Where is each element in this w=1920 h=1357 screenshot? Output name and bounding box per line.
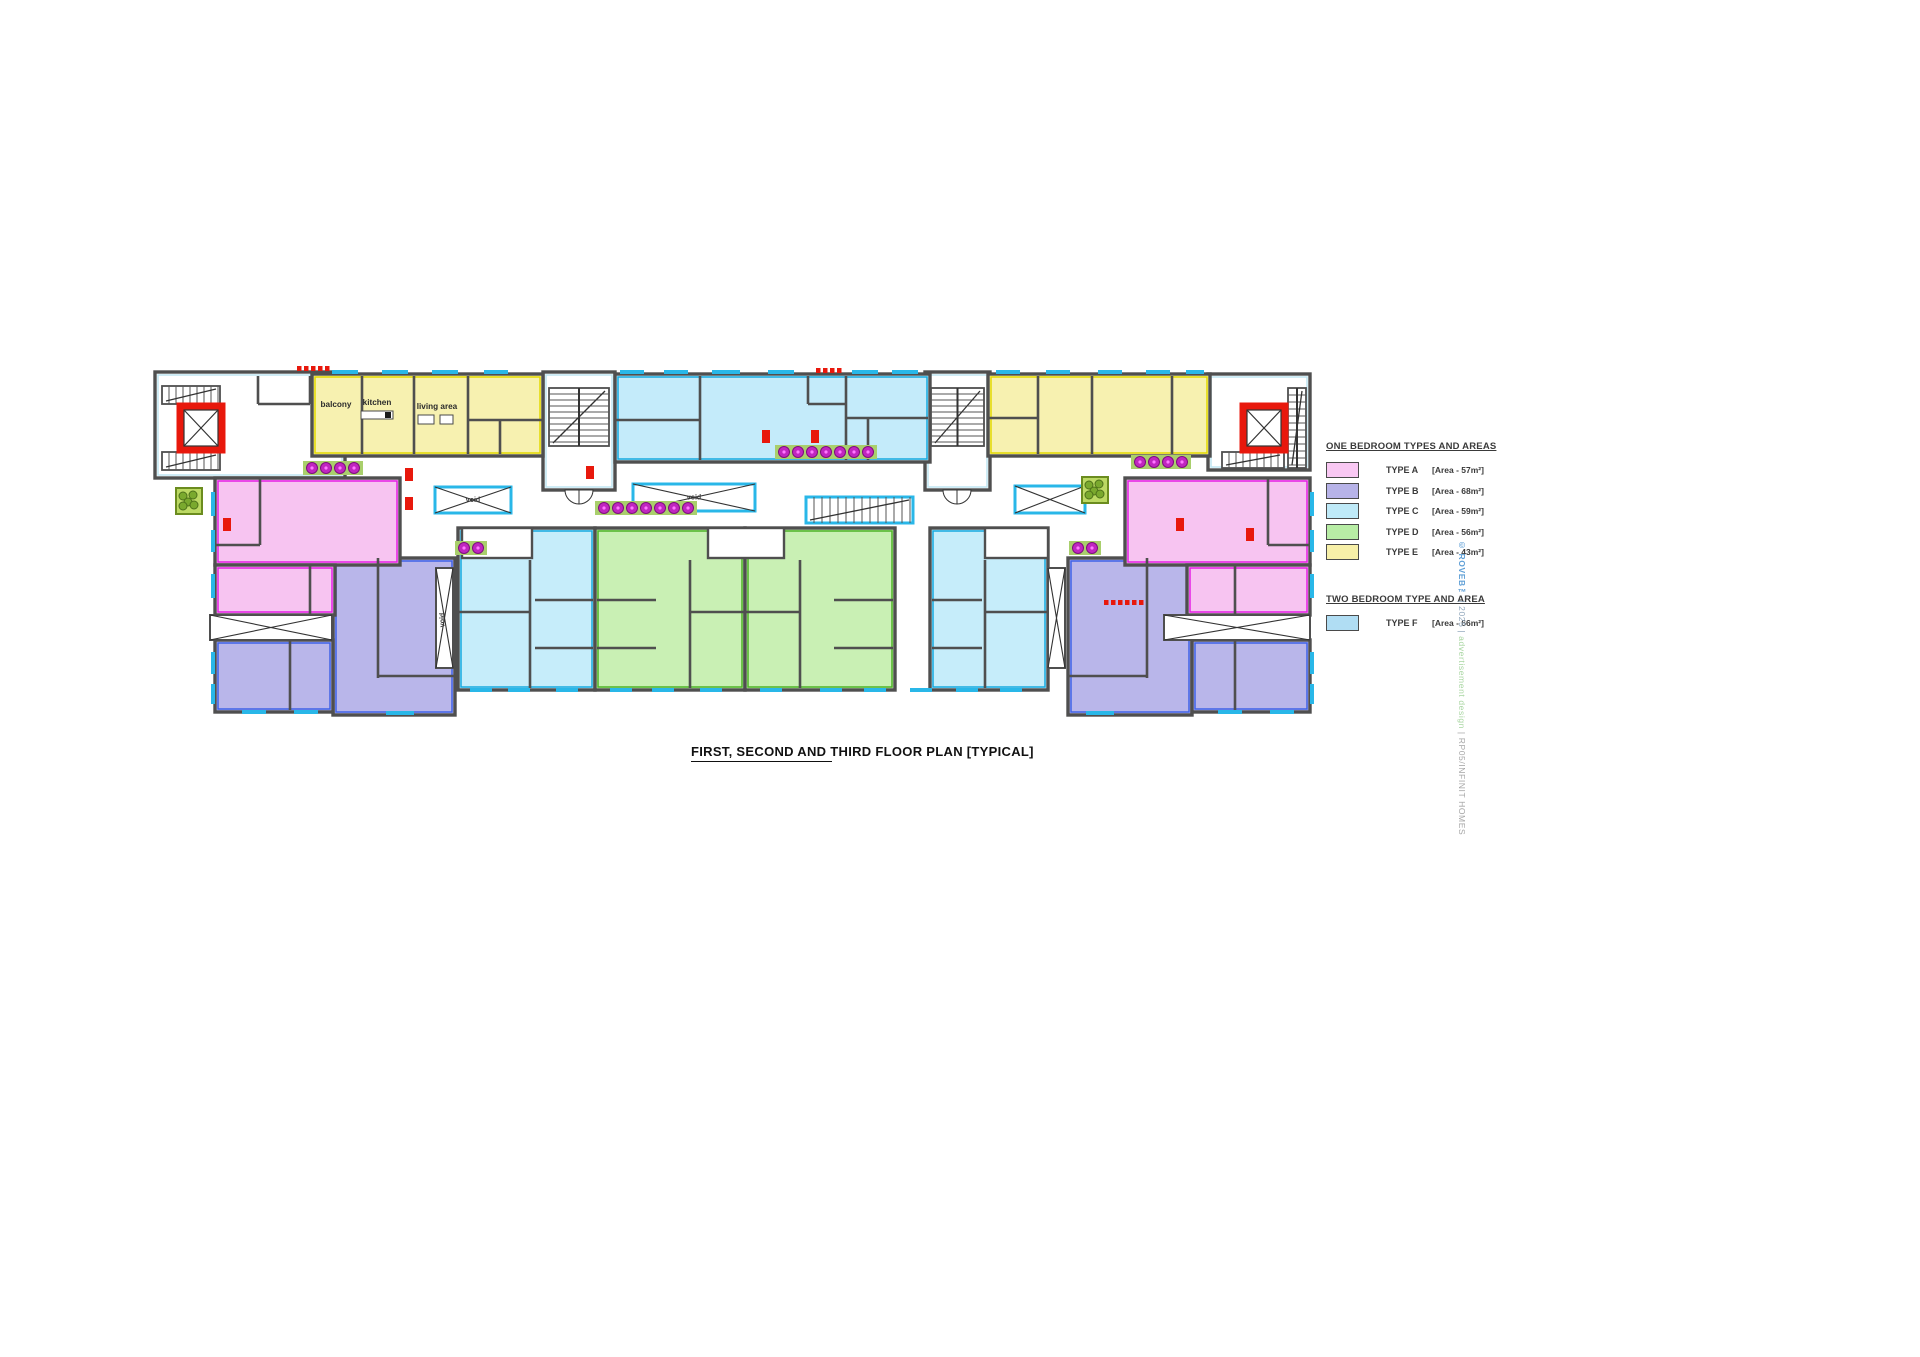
red-dash [325, 366, 330, 371]
legend-one-bedroom-title: ONE BEDROOM TYPES AND AREAS [1326, 441, 1486, 452]
watermark-code: RP05/INFINIT HOMES [1457, 738, 1467, 836]
flower-center [672, 506, 675, 509]
flower-center [476, 546, 479, 549]
flower-center [824, 450, 827, 453]
fire-equipment-mark [223, 518, 231, 531]
legend-area-label: [Area - 57m²] [1432, 465, 1484, 475]
fire-equipment-mark [811, 430, 819, 443]
plan-title-underline [691, 761, 832, 762]
red-dash [830, 368, 835, 373]
legend-type-label: TYPE E [1386, 547, 1428, 557]
terrace-notch [708, 528, 784, 558]
flower-center [658, 506, 661, 509]
watermark-year: | 2025 | [1457, 597, 1467, 636]
flower-center [602, 506, 605, 509]
red-dash [1132, 600, 1137, 605]
unit-type-B [1192, 640, 1310, 712]
fire-equipment-mark [1246, 528, 1254, 541]
legend-type-label: TYPE A [1386, 465, 1428, 475]
watermark-brand: © ROVEB™ [1457, 540, 1467, 597]
flower-center [462, 546, 465, 549]
planter-leaf [179, 502, 187, 510]
unit-type-B [215, 640, 333, 712]
legend-area-label: [Area - 56m²] [1432, 527, 1484, 537]
fire-equipment-mark [405, 497, 413, 510]
red-dash [297, 366, 302, 371]
flower-center [644, 506, 647, 509]
planter-leaf [1085, 491, 1093, 499]
legend-type-label: TYPE B [1386, 486, 1428, 496]
drawing-sheet: voidvoidvoidbalconykitchenliving area ON… [0, 0, 1920, 1357]
watermark: © ROVEB™ | 2025 | advertisement design |… [1457, 540, 1467, 800]
legend-swatch [1326, 544, 1359, 560]
unit-type-A [215, 478, 400, 565]
planter-leaf [1096, 490, 1104, 498]
fire-equipment-mark [405, 468, 413, 481]
red-dash [311, 366, 316, 371]
table-icon [440, 415, 453, 424]
legend-row: TYPE D[Area - 56m²] [1326, 522, 1486, 543]
flower-center [1152, 460, 1155, 463]
flower-center [782, 450, 785, 453]
legend-type-label: TYPE D [1386, 527, 1428, 537]
unit-type-A [1125, 478, 1310, 565]
watermark-design: advertisement design [1457, 636, 1467, 729]
plan-label: void [440, 613, 447, 627]
flower-center [852, 450, 855, 453]
flower-center [1076, 546, 1079, 549]
flower-center [1090, 546, 1093, 549]
unit-type-A [1187, 565, 1310, 615]
door-swing [943, 490, 957, 504]
legend-type-label: TYPE F [1386, 618, 1428, 628]
planter-leaf [189, 491, 197, 499]
sofa-icon [418, 415, 434, 424]
door-swing [579, 490, 593, 504]
planter-leaf [190, 501, 198, 509]
red-dash [1118, 600, 1123, 605]
legend-type-label: TYPE C [1386, 506, 1428, 516]
flower-center [324, 466, 327, 469]
unit-type-A [215, 565, 335, 615]
flower-center [616, 506, 619, 509]
flower-center [686, 506, 689, 509]
legend-swatch [1326, 503, 1359, 519]
plan-label: kitchen [363, 398, 392, 407]
red-dash [1139, 600, 1144, 605]
terrace-notch [985, 528, 1048, 558]
flower-center [310, 466, 313, 469]
legend-area-label: [Area - 59m²] [1432, 506, 1484, 516]
flower-center [352, 466, 355, 469]
fire-equipment-mark [762, 430, 770, 443]
legend-row: TYPE B[Area - 68m²] [1326, 481, 1486, 502]
door-swing [957, 490, 971, 504]
unit-type-E [988, 374, 1210, 456]
plan-label: void [687, 495, 701, 502]
legend-row: TYPE A[Area - 57m²] [1326, 460, 1486, 481]
flower-center [796, 450, 799, 453]
door-swing [565, 490, 579, 504]
red-dash [318, 366, 323, 371]
floor-plan-svg: voidvoidvoidbalconykitchenliving area [0, 0, 1920, 1357]
flower-center [338, 466, 341, 469]
plan-label: void [466, 497, 480, 504]
plan-label: balcony [321, 400, 352, 409]
plan-label: living area [417, 402, 458, 411]
flower-center [630, 506, 633, 509]
legend-row: TYPE C[Area - 59m²] [1326, 501, 1486, 522]
red-dash [823, 368, 828, 373]
flower-center [838, 450, 841, 453]
red-dash [1111, 600, 1116, 605]
watermark-separator: | [1457, 729, 1467, 738]
red-dash [816, 368, 821, 373]
fire-equipment-mark [586, 466, 594, 479]
legend-swatch [1326, 615, 1359, 631]
legend-swatch [1326, 524, 1359, 540]
legend-swatch [1326, 462, 1359, 478]
fire-equipment-mark [1176, 518, 1184, 531]
legend-swatch [1326, 483, 1359, 499]
planter-leaf [1095, 480, 1103, 488]
flower-center [1138, 460, 1141, 463]
flower-center [1180, 460, 1183, 463]
plan-title: FIRST, SECOND AND THIRD FLOOR PLAN [TYPI… [691, 744, 1034, 759]
red-dash [837, 368, 842, 373]
red-dash [1104, 600, 1109, 605]
flower-center [1166, 460, 1169, 463]
legend-area-label: [Area - 68m²] [1432, 486, 1484, 496]
flower-center [810, 450, 813, 453]
stove-icon [385, 412, 391, 418]
red-dash [1125, 600, 1130, 605]
red-dash [304, 366, 309, 371]
flower-center [866, 450, 869, 453]
